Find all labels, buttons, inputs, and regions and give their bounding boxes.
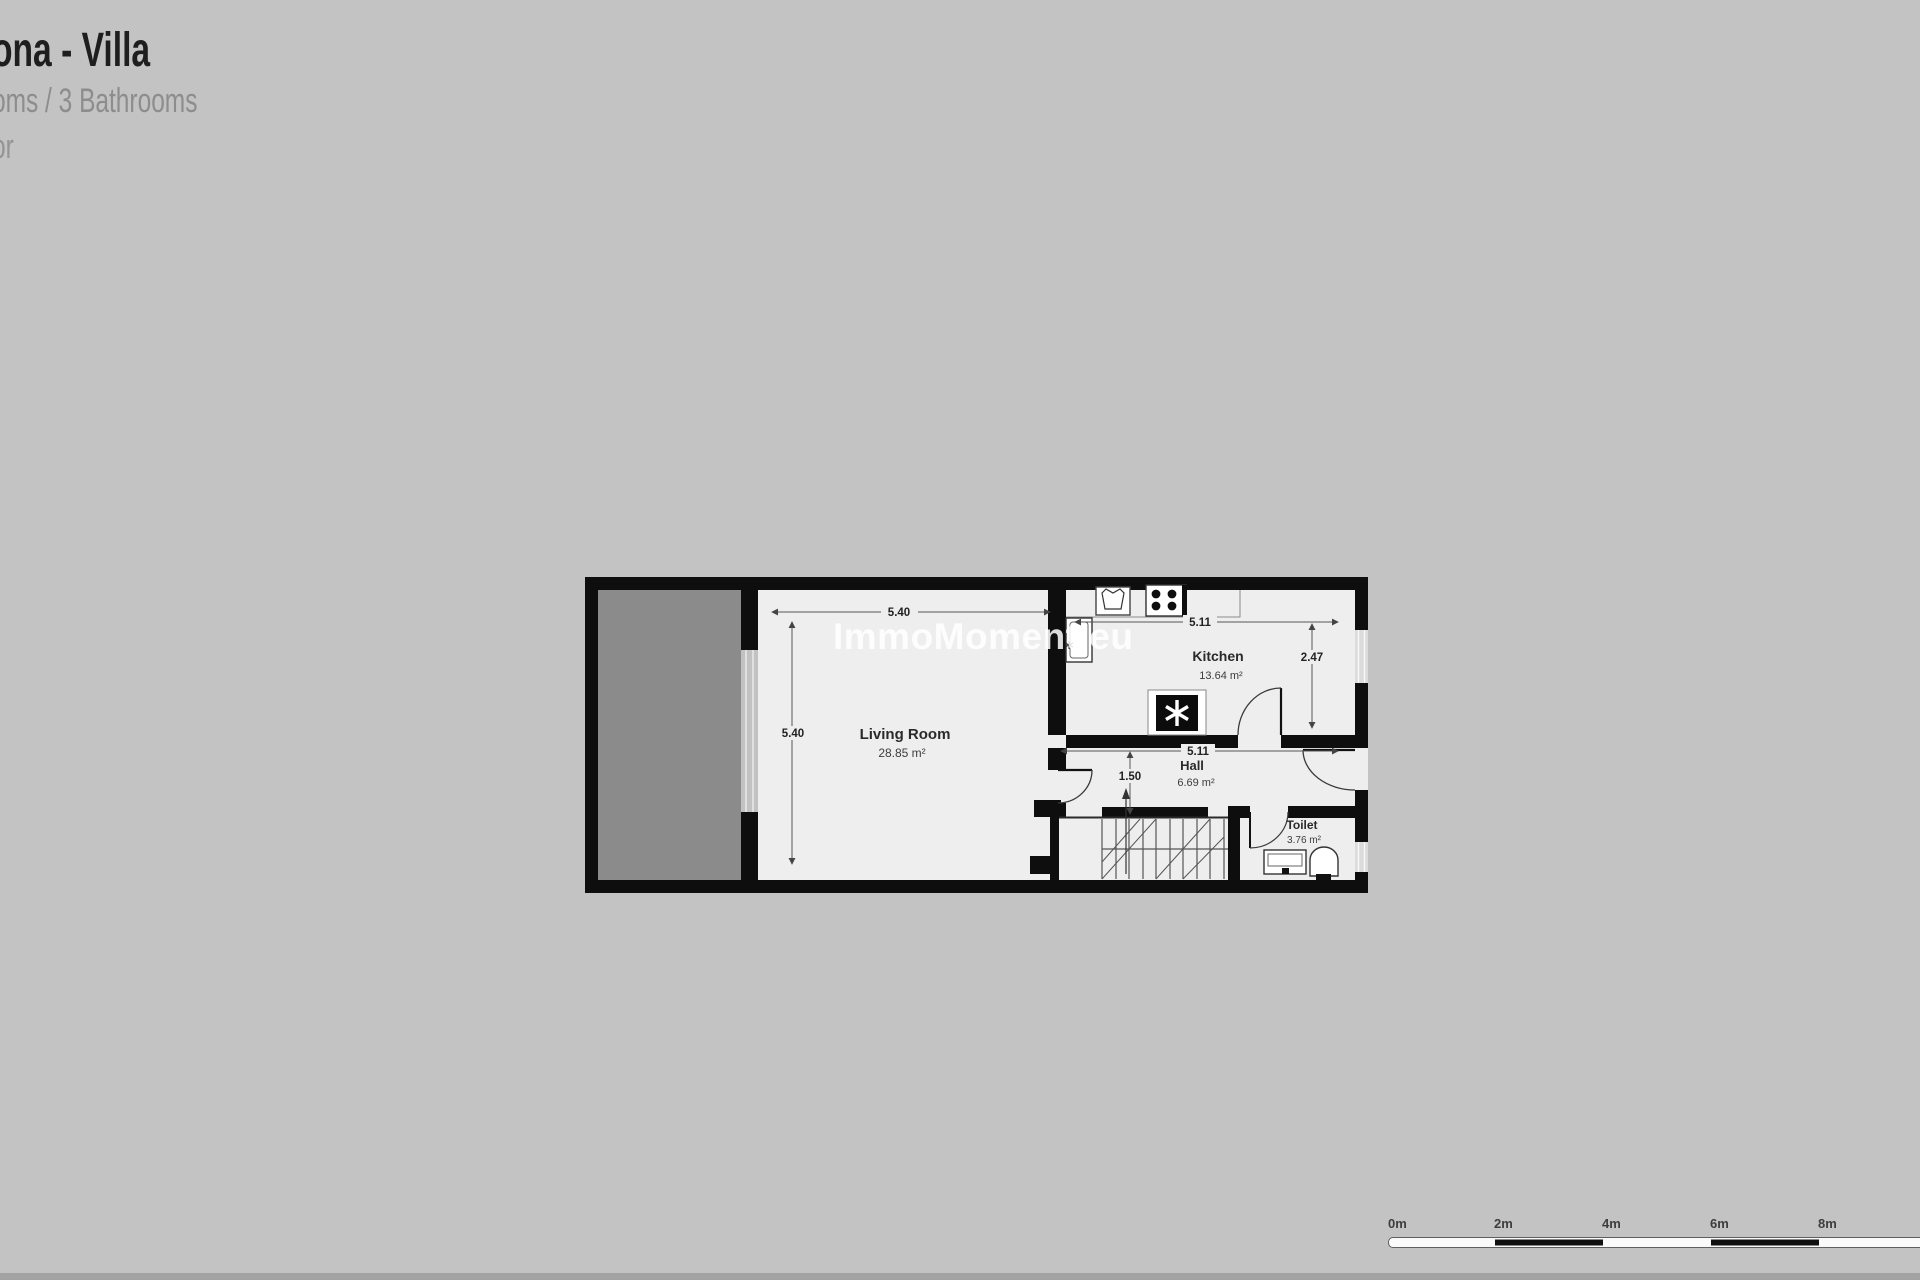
scale-label-6m: 6m [1710, 1216, 1729, 1231]
toilet-area: 3.76 m² [1287, 835, 1322, 846]
toilet-label: Toilet [1286, 818, 1317, 832]
listing-header: ona - Villa oms / 3 Bathrooms or [0, 24, 277, 169]
scale-bar: 0m 2m 4m 6m 8m [1388, 1216, 1920, 1252]
hall-width-dim: 5.11 [1187, 746, 1209, 758]
kitchen-area: 13.64 m² [1199, 670, 1243, 682]
scale-label-0m: 0m [1388, 1216, 1407, 1231]
burner [1152, 602, 1161, 611]
watermark: ImmoMoment.eu [833, 616, 1133, 658]
washbasin-tap [1282, 868, 1289, 874]
living-room-height-dim: 5.40 [782, 728, 804, 740]
toilet-window [1355, 842, 1368, 872]
hall-height-dim: 1.50 [1119, 771, 1141, 783]
kitchen-height-dim: 2.47 [1301, 652, 1323, 664]
scale-bar-track [1388, 1237, 1920, 1248]
hall-area: 6.69 m² [1177, 777, 1215, 789]
stove-icon [1146, 585, 1187, 616]
kitchen-window [1355, 630, 1368, 683]
living-room-label: Living Room [860, 726, 951, 743]
page-title: ona - Villa [0, 24, 192, 78]
boiler-icon [1148, 690, 1206, 735]
burner [1152, 590, 1161, 599]
floor-label: or [0, 125, 197, 169]
kitchen-width-dim: 5.11 [1189, 617, 1211, 629]
burner [1168, 602, 1177, 611]
page-background: ona - Villa oms / 3 Bathrooms or [0, 0, 1920, 1280]
scale-label-4m: 4m [1602, 1216, 1621, 1231]
stove-edge [1182, 585, 1187, 616]
washbasin-icon [1264, 850, 1306, 874]
toilet-window-glass [1355, 842, 1368, 872]
wc-bowl [1310, 847, 1338, 876]
terrace-window [741, 650, 758, 812]
kitchen-window-glass [1355, 630, 1368, 683]
front-door-opening [1355, 748, 1368, 790]
scale-label-8m: 8m [1818, 1216, 1837, 1231]
hall-label: Hall [1180, 758, 1204, 773]
sink-icon [1096, 587, 1130, 615]
scale-label-2m: 2m [1494, 1216, 1513, 1231]
wc-base [1316, 874, 1331, 880]
bottom-edge-shade [0, 1273, 1920, 1280]
terrace-window-glass [741, 650, 758, 812]
wc-icon [1310, 847, 1338, 880]
terrace-area [598, 590, 741, 880]
living-room-area: 28.85 m² [878, 746, 925, 760]
page-subtitle: oms / 3 Bathrooms [0, 78, 197, 125]
burner [1168, 590, 1177, 599]
stove-box [1146, 585, 1186, 616]
kitchen-label: Kitchen [1192, 648, 1243, 664]
